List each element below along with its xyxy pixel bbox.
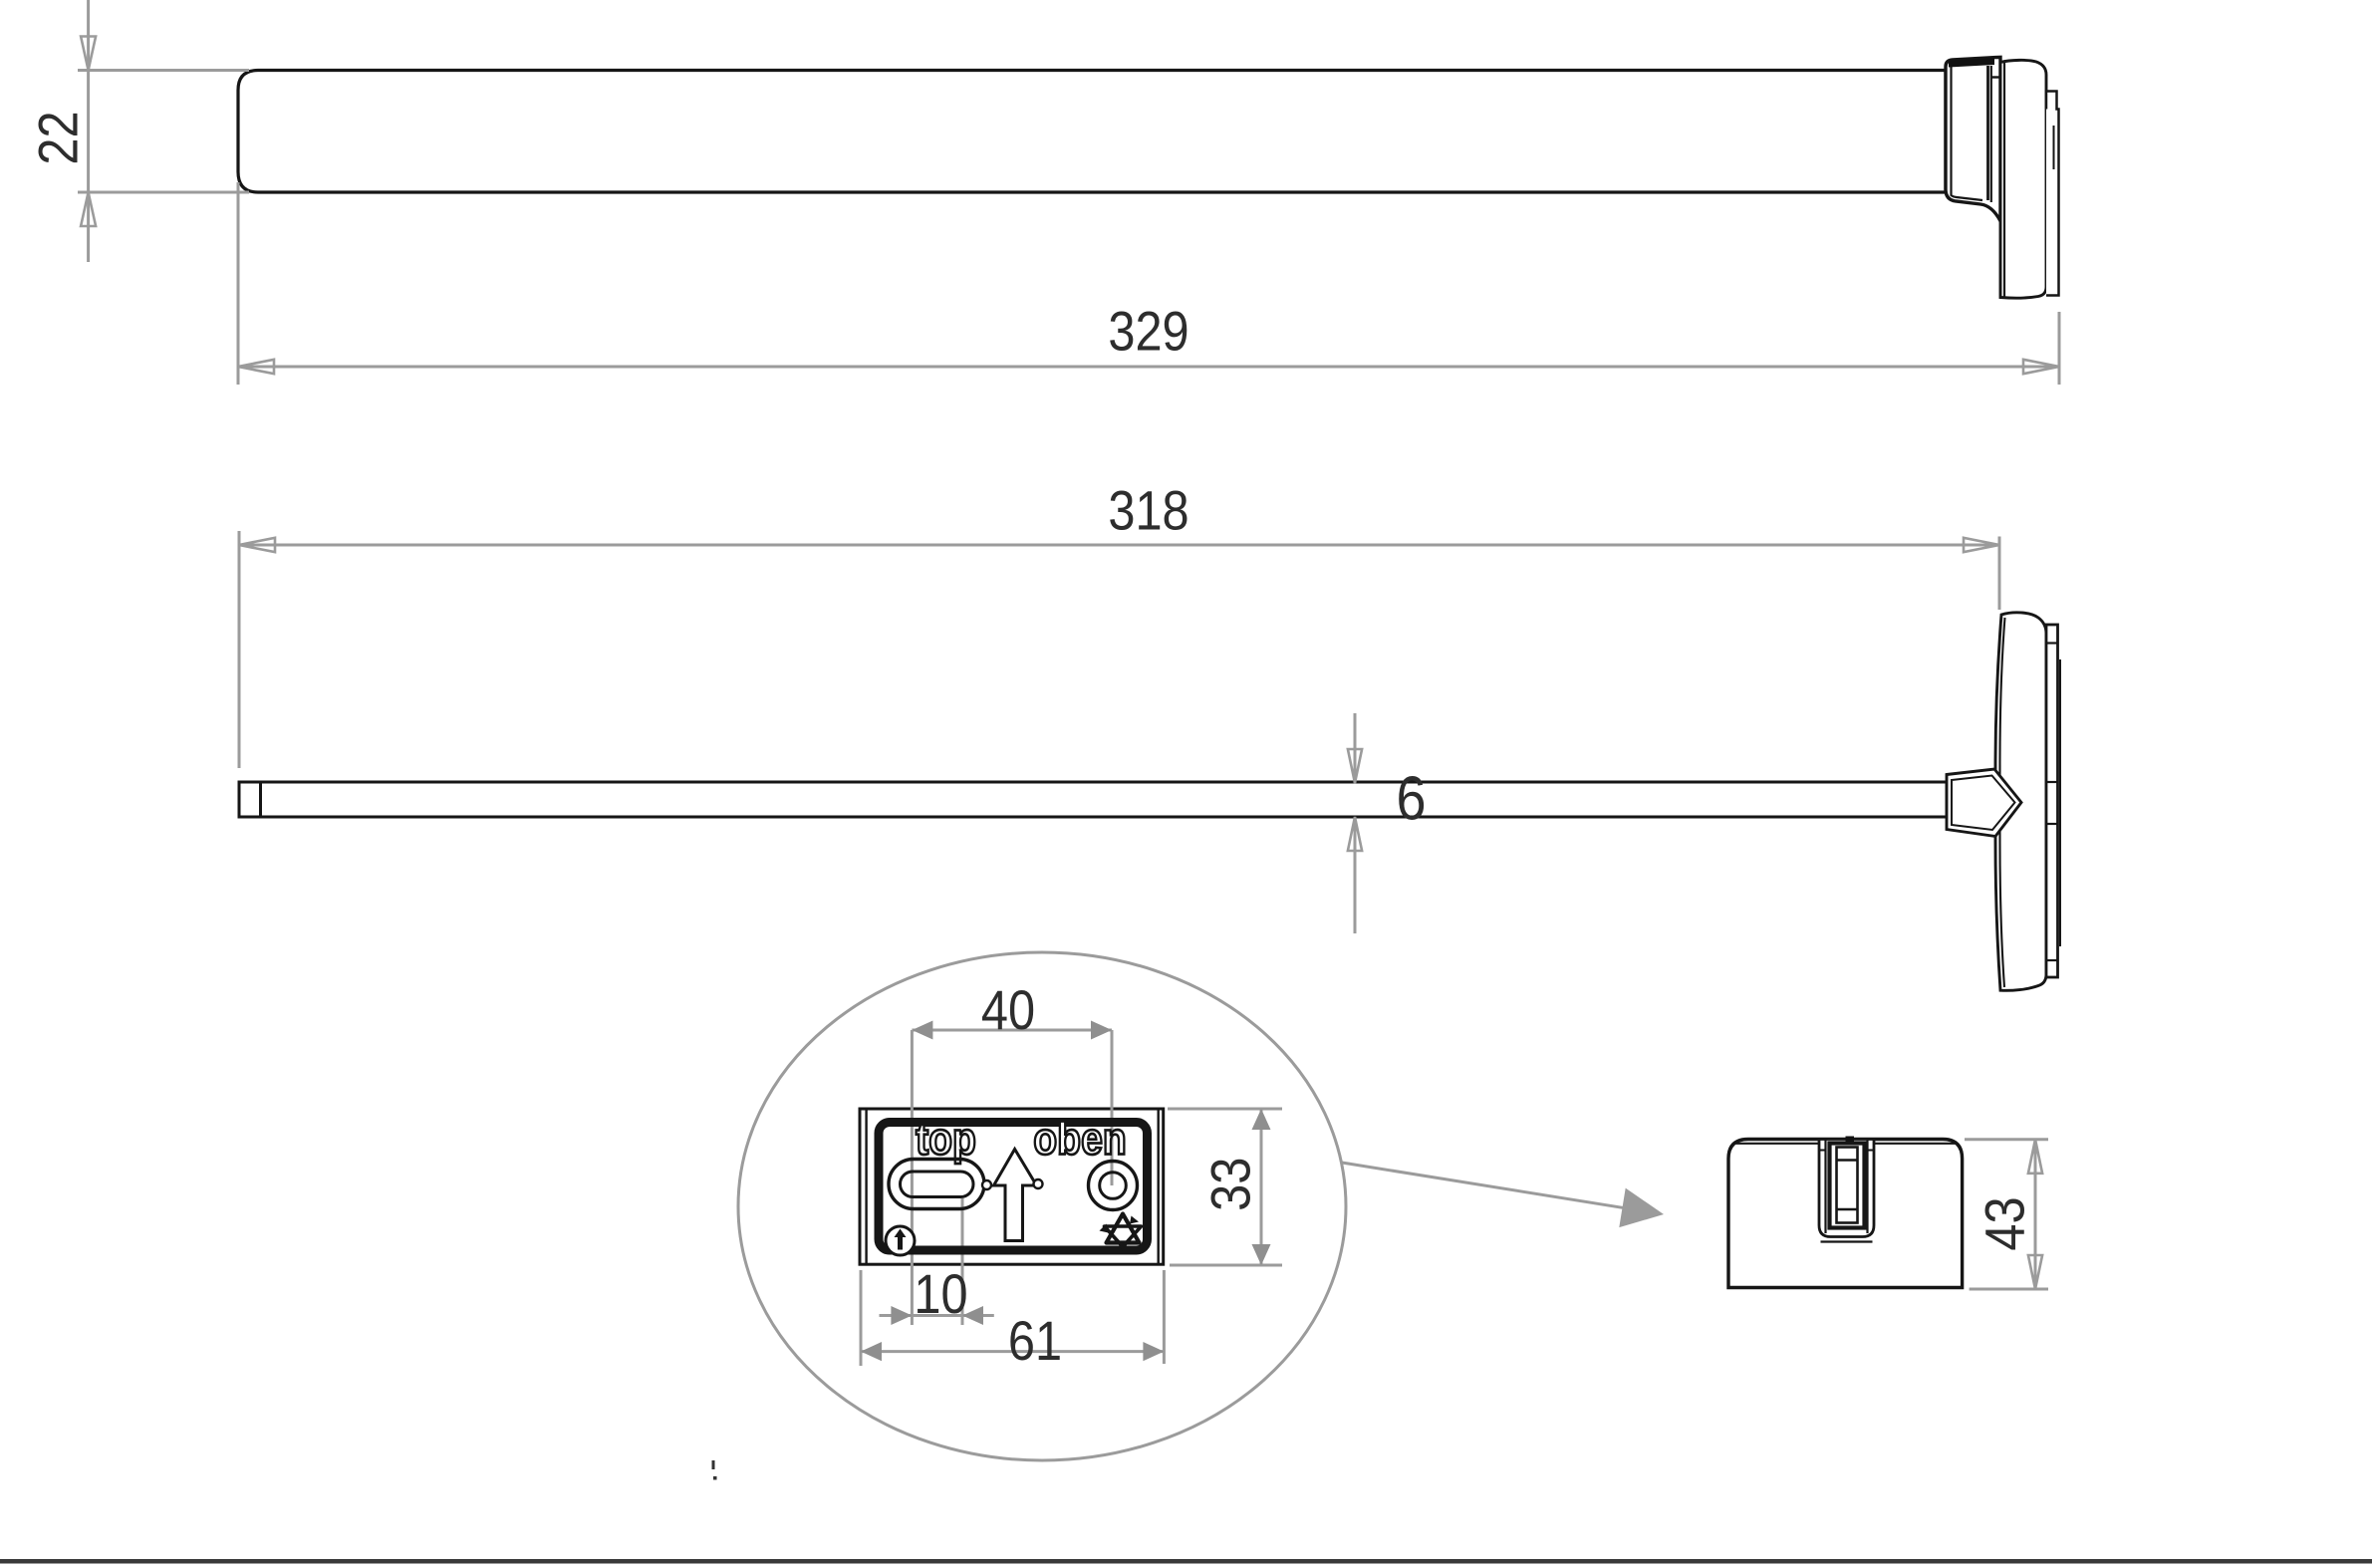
svg-text:43: 43 (1974, 1196, 2036, 1250)
svg-text:22: 22 (28, 111, 91, 164)
svg-text:40: 40 (981, 979, 1035, 1042)
svg-text:oben: oben (1033, 1114, 1126, 1164)
svg-text:6: 6 (1397, 764, 1427, 833)
svg-text:33: 33 (1200, 1158, 1263, 1211)
svg-text:top: top (916, 1114, 976, 1164)
svg-text:10: 10 (914, 1263, 967, 1326)
svg-text:61: 61 (1008, 1310, 1062, 1373)
svg-text:329: 329 (1108, 301, 1188, 364)
svg-text:318: 318 (1108, 480, 1188, 543)
